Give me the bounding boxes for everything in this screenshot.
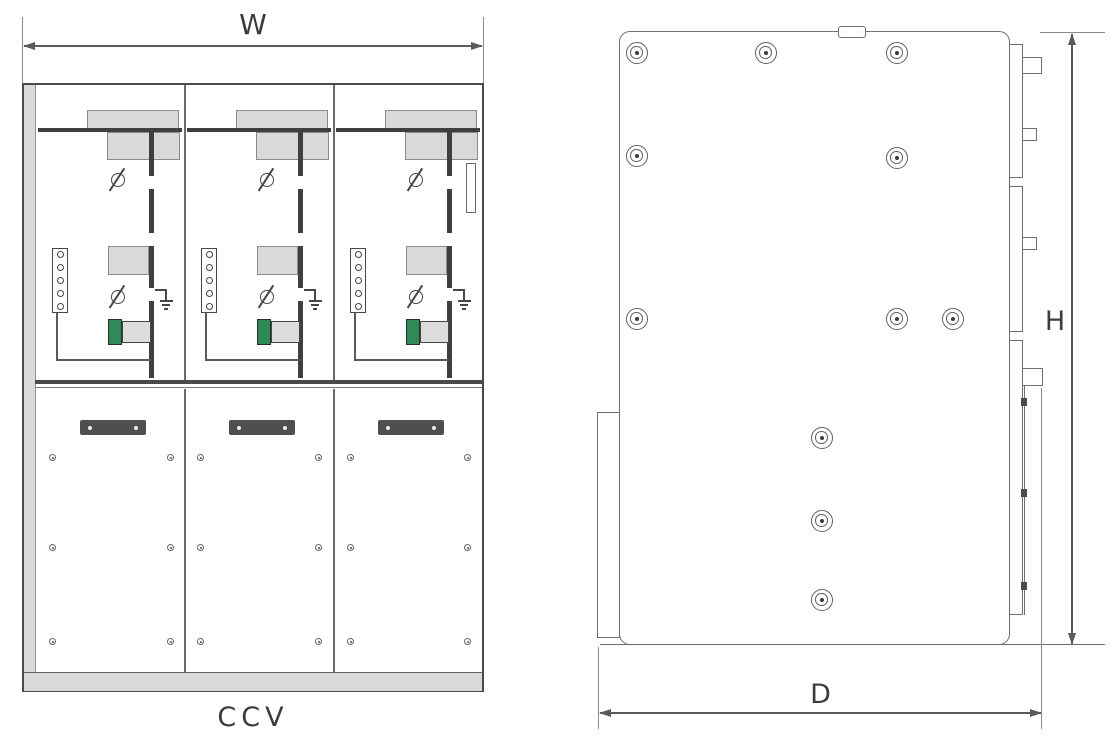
control-wire-horizontal	[354, 359, 449, 361]
earth-symbol-icon	[453, 289, 471, 315]
switch-housing	[256, 132, 329, 160]
switch-rod	[447, 132, 452, 176]
current-transformer-box	[406, 246, 447, 275]
current-transformer-box	[257, 246, 298, 275]
panel-bolt-icon	[755, 42, 777, 64]
height-dimension-arrow	[1071, 34, 1073, 644]
panel-bolt-icon	[626, 145, 648, 167]
mechanism-indicator-green	[257, 319, 271, 345]
switch-rod	[298, 132, 303, 176]
terminal-strip-icon	[52, 248, 68, 313]
control-wire-vertical	[56, 313, 58, 361]
cabinet-outline	[22, 83, 484, 692]
busbar-cover-plate	[236, 110, 328, 129]
switchgear-technical-drawing: W	[0, 0, 1110, 751]
door-handle	[80, 420, 146, 435]
door-panel-3	[334, 390, 479, 672]
front-view-caption: CCV	[22, 702, 484, 733]
control-wire-vertical	[354, 313, 356, 361]
operating-mechanism-box	[271, 321, 300, 343]
panel-bolt-icon	[626, 42, 648, 64]
door-screw	[167, 544, 174, 551]
disconnector-symbol-icon	[409, 173, 423, 187]
door-screw	[49, 544, 56, 551]
door-screw	[197, 544, 204, 551]
depth-dimension-arrow	[600, 712, 1041, 714]
mechanism-indicator-green	[108, 319, 122, 345]
terminal-strip-icon	[350, 248, 366, 313]
switch-rod	[149, 246, 154, 288]
height-dimension-label: H	[1041, 306, 1069, 337]
hv-compartment-section-3	[333, 86, 481, 380]
door-top-rail	[35, 387, 482, 388]
door-screw	[464, 544, 471, 551]
lifting-tab	[838, 26, 866, 38]
panel-bolt-icon	[886, 308, 908, 330]
rear-step-bracket	[1022, 368, 1043, 386]
panel-bolt-icon	[942, 308, 964, 330]
switch-housing	[107, 132, 180, 160]
switch-rod-dashed	[447, 189, 452, 233]
rear-hinge-line	[1024, 386, 1025, 615]
door-screw	[197, 454, 204, 461]
door-handle	[378, 420, 444, 435]
door-screw	[197, 638, 204, 645]
width-dimension-arrow	[24, 45, 482, 47]
door-screw	[347, 638, 354, 645]
door-screw	[315, 638, 322, 645]
control-wire-horizontal	[205, 359, 300, 361]
side-panel-outline	[619, 31, 1010, 645]
side-duct	[466, 163, 476, 213]
rear-strip-lower	[1009, 340, 1023, 615]
hinge-pin-icon	[1021, 582, 1027, 590]
door-panel-1	[36, 390, 184, 672]
switch-rod-dashed	[149, 189, 154, 233]
disconnector-symbol-icon	[111, 173, 125, 187]
cabinet-base-plinth	[24, 672, 482, 691]
door-panel-2	[185, 390, 333, 672]
width-dimension-label: W	[22, 8, 484, 41]
panel-bolt-icon	[886, 42, 908, 64]
switch-rod	[149, 132, 154, 176]
earth-symbol-icon	[155, 289, 173, 315]
door-screw	[464, 454, 471, 461]
panel-bolt-icon	[886, 147, 908, 169]
control-wire-horizontal	[56, 359, 151, 361]
mechanism-indicator-green	[406, 319, 420, 345]
compartment-bottom-rail	[35, 380, 482, 384]
depth-dimension-label: D	[600, 679, 1041, 710]
door-screw	[464, 638, 471, 645]
terminal-strip-icon	[201, 248, 217, 313]
panel-bolt-icon	[626, 308, 648, 330]
switch-rod	[298, 246, 303, 288]
door-screw	[49, 454, 56, 461]
door-screw	[49, 638, 56, 645]
hv-compartment-section-2	[184, 86, 333, 380]
panel-bolt-icon	[811, 589, 833, 611]
width-extension-line-left	[22, 17, 23, 83]
panel-bolt-icon	[811, 427, 833, 449]
switch-housing	[405, 132, 478, 160]
depth-extension-line-right	[1041, 388, 1042, 729]
busbar-cover-plate	[87, 110, 179, 129]
rear-strip-middle	[1009, 186, 1023, 332]
control-wire-vertical	[205, 313, 207, 361]
bottom-edge-line	[600, 644, 1105, 646]
door-handle	[229, 420, 295, 435]
hinge-pin-icon	[1021, 398, 1027, 406]
hinge-pin-icon	[1021, 489, 1027, 497]
operating-mechanism-box	[122, 321, 151, 343]
width-extension-line-right	[483, 17, 484, 83]
rear-tab-small	[1022, 237, 1037, 250]
door-screw	[315, 544, 322, 551]
operating-mechanism-box	[420, 321, 449, 343]
rear-strip-upper	[1009, 44, 1023, 178]
hv-compartment-section-1	[35, 86, 184, 380]
door-screw	[167, 638, 174, 645]
rear-tab-small	[1022, 128, 1037, 141]
switch-rod	[447, 246, 452, 288]
door-screw	[167, 454, 174, 461]
earth-symbol-icon	[304, 289, 322, 315]
disconnector-symbol-icon	[409, 290, 423, 304]
rear-tab-large	[1022, 57, 1042, 74]
switch-rod-dashed	[298, 189, 303, 233]
panel-bolt-icon	[811, 510, 833, 532]
door-screw	[347, 544, 354, 551]
busbar-cover-plate	[385, 110, 477, 129]
door-screw	[347, 454, 354, 461]
current-transformer-box	[108, 246, 149, 275]
disconnector-symbol-icon	[260, 290, 274, 304]
front-door-edge-bracket	[597, 412, 620, 638]
disconnector-symbol-icon	[260, 173, 274, 187]
door-screw	[315, 454, 322, 461]
disconnector-symbol-icon	[111, 290, 125, 304]
